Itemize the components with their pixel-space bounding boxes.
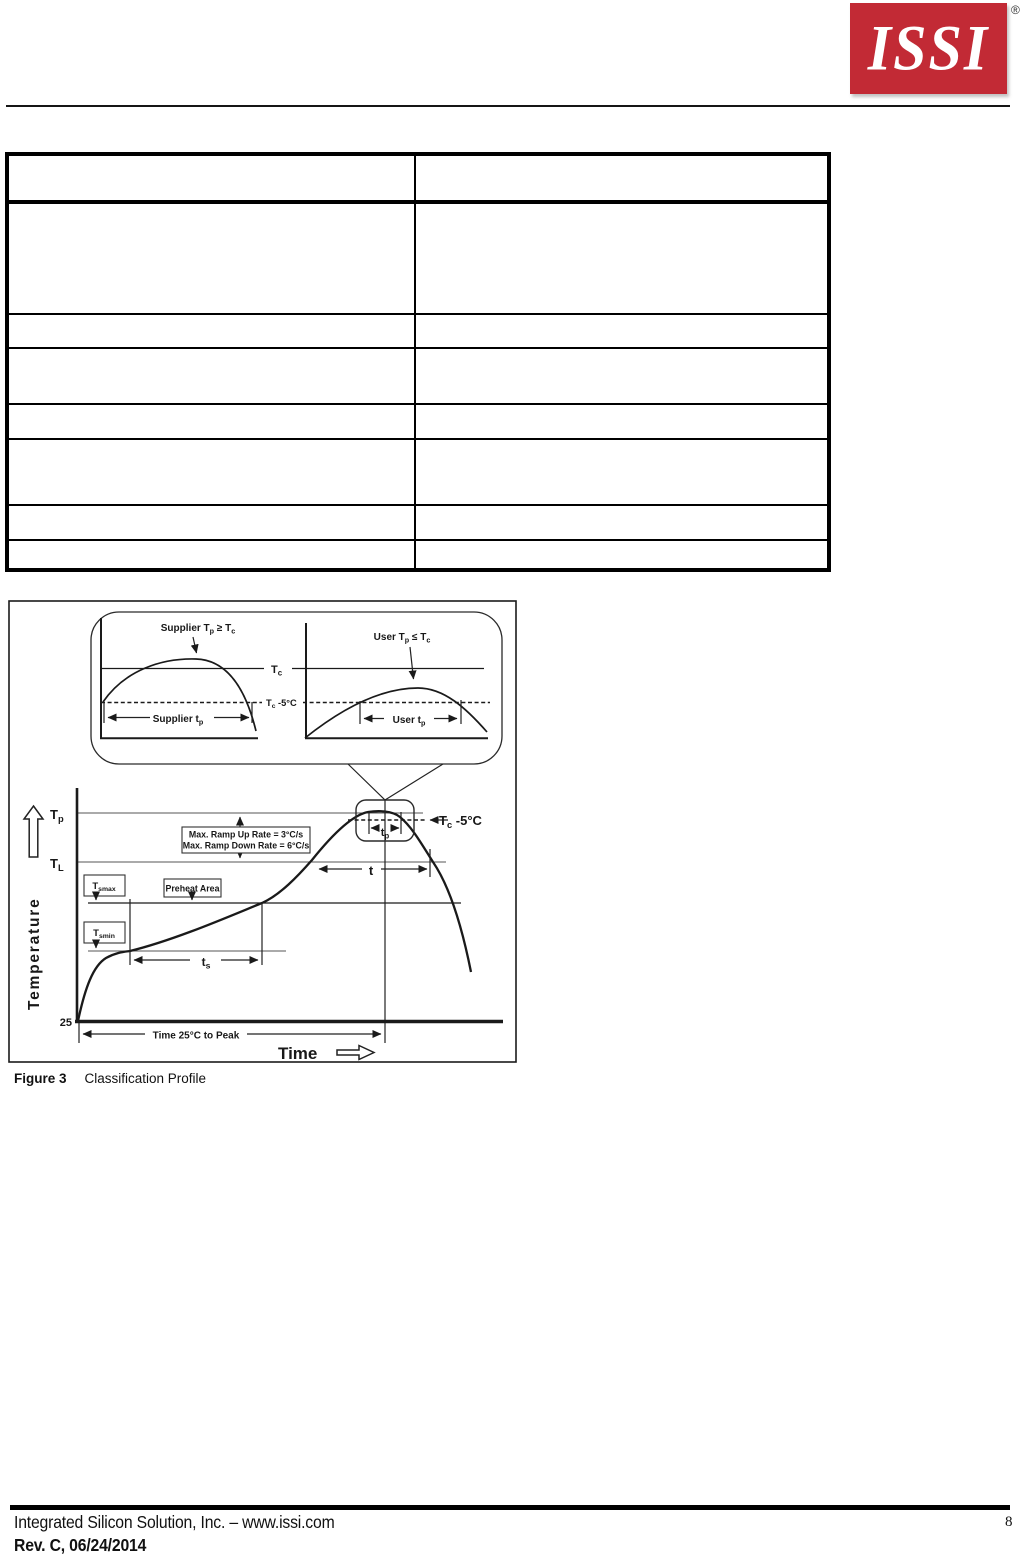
zoom-callout-bubble <box>91 612 502 764</box>
spec-table-empty <box>5 152 831 572</box>
table-cell <box>7 348 415 404</box>
table-cell <box>415 404 829 439</box>
table-cell <box>415 154 829 202</box>
table-cell <box>7 540 415 570</box>
table-cell <box>7 439 415 505</box>
ramp-up-rate-label: Max. Ramp Up Rate = 3°C/s <box>189 830 303 840</box>
table-row <box>7 202 829 314</box>
table-row <box>7 348 829 404</box>
time-to-peak-label: Time 25°C to Peak <box>153 1031 240 1042</box>
header-rule <box>6 105 1010 107</box>
preheat-area-label: Preheat Area <box>166 884 220 894</box>
time-axis-label: Time <box>278 1044 317 1063</box>
table-row <box>7 314 829 348</box>
table-cell <box>7 505 415 540</box>
figure-caption: Figure 3 Classification Profile <box>14 1071 206 1086</box>
user-condition-label: User Tp ≤ Tc <box>374 632 431 645</box>
temperature-axis-label: Temperature <box>26 897 43 1010</box>
origin-temp-label: 25 <box>60 1017 72 1029</box>
table-row <box>7 505 829 540</box>
table-cell <box>415 439 829 505</box>
user-tp-span-label: User tp <box>393 715 426 728</box>
issi-logo-text: ISSI <box>868 11 989 86</box>
table-cell <box>415 202 829 314</box>
table-cell <box>415 540 829 570</box>
t-span-label: t <box>369 863 374 878</box>
footer-rule <box>10 1505 1010 1510</box>
footer-company-line: Integrated Silicon Solution, Inc. – www.… <box>14 1512 335 1533</box>
table-row <box>7 439 829 505</box>
issi-logo: ISSI <box>850 3 1007 94</box>
table-row <box>7 540 829 570</box>
datasheet-page: ISSI ® <box>0 0 1025 1561</box>
registered-trademark-icon: ® <box>1011 3 1020 17</box>
table-cell <box>7 404 415 439</box>
supplier-condition-label: Supplier Tp ≥ Tc <box>161 623 235 636</box>
page-number: 8 <box>1005 1514 1013 1531</box>
supplier-tp-span-label: Supplier tp <box>153 714 204 727</box>
table-cell <box>415 348 829 404</box>
table-row <box>7 404 829 439</box>
table-cell <box>415 505 829 540</box>
peak-tc-minus5-label: Tc -5°C <box>439 813 483 830</box>
table-cell <box>415 314 829 348</box>
table-row <box>7 154 829 202</box>
classification-profile-figure: Supplier Tp ≥ Tc Supplier tp Tc Tc -5°C … <box>8 600 517 1063</box>
table-cell <box>7 202 415 314</box>
figure-caption-title: Classification Profile <box>85 1071 207 1086</box>
ramp-down-rate-label: Max. Ramp Down Rate = 6°C/s <box>183 841 310 851</box>
figure-caption-number: Figure 3 <box>14 1071 67 1086</box>
footer-revision-line: Rev. C, 06/24/2014 <box>14 1535 146 1556</box>
table-cell <box>7 314 415 348</box>
table-cell <box>7 154 415 202</box>
